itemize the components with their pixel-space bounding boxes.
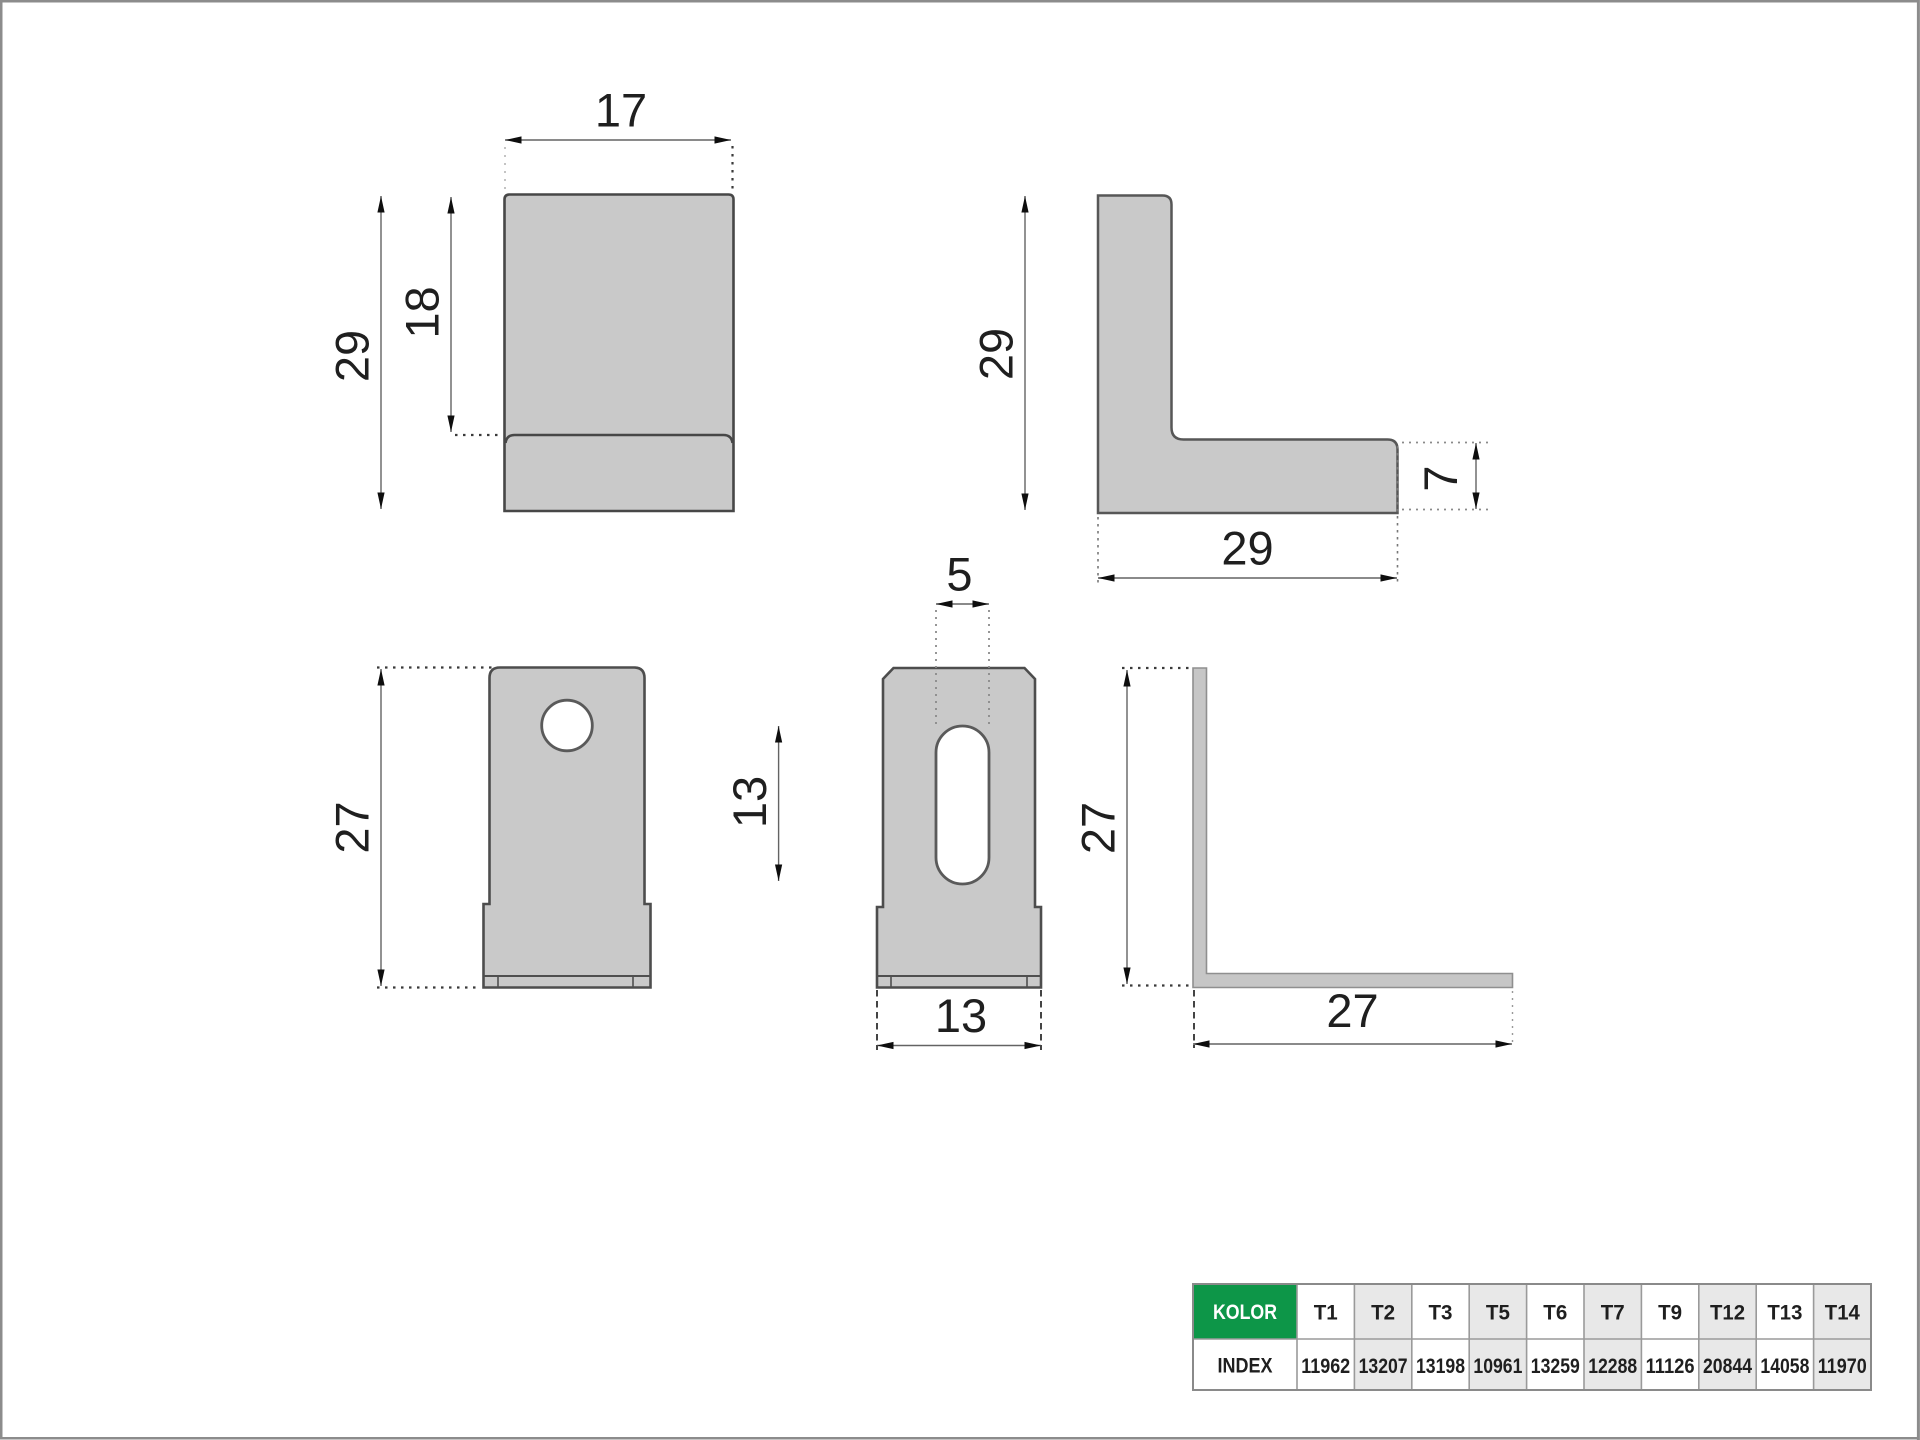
svg-text:20844: 20844 xyxy=(1703,1354,1752,1378)
svg-text:KOLOR: KOLOR xyxy=(1213,1300,1277,1324)
svg-text:11970: 11970 xyxy=(1818,1354,1867,1378)
svg-text:29: 29 xyxy=(326,330,379,382)
svg-text:27: 27 xyxy=(1326,984,1378,1037)
svg-text:T3: T3 xyxy=(1429,1301,1453,1325)
svg-text:18: 18 xyxy=(396,286,449,338)
svg-text:T14: T14 xyxy=(1825,1301,1860,1325)
svg-text:T9: T9 xyxy=(1658,1301,1682,1325)
svg-text:14058: 14058 xyxy=(1760,1354,1809,1378)
svg-text:27: 27 xyxy=(1072,802,1125,854)
svg-text:11962: 11962 xyxy=(1301,1354,1350,1378)
svg-text:10961: 10961 xyxy=(1473,1354,1522,1378)
svg-text:T7: T7 xyxy=(1601,1301,1625,1325)
svg-text:11126: 11126 xyxy=(1646,1354,1695,1378)
svg-text:29: 29 xyxy=(1221,522,1273,575)
svg-text:T1: T1 xyxy=(1314,1301,1338,1325)
svg-text:13: 13 xyxy=(723,776,776,828)
svg-text:13198: 13198 xyxy=(1416,1354,1465,1378)
svg-text:12288: 12288 xyxy=(1588,1354,1637,1378)
svg-text:7: 7 xyxy=(1414,465,1467,491)
svg-text:T12: T12 xyxy=(1710,1301,1745,1325)
svg-text:T6: T6 xyxy=(1543,1301,1567,1325)
svg-text:T2: T2 xyxy=(1371,1301,1395,1325)
svg-text:5: 5 xyxy=(946,548,972,601)
svg-text:13207: 13207 xyxy=(1359,1354,1408,1378)
svg-text:27: 27 xyxy=(326,801,379,853)
svg-text:T13: T13 xyxy=(1767,1301,1802,1325)
svg-text:13259: 13259 xyxy=(1531,1354,1580,1378)
svg-text:INDEX: INDEX xyxy=(1218,1354,1274,1378)
svg-text:T5: T5 xyxy=(1486,1301,1510,1325)
svg-text:29: 29 xyxy=(970,328,1023,380)
svg-text:13: 13 xyxy=(935,989,987,1042)
svg-text:17: 17 xyxy=(595,84,647,137)
